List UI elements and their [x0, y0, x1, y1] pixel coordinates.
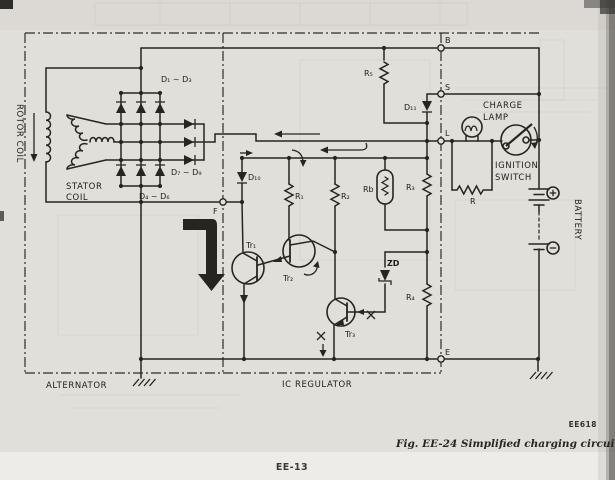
bleedthrough-ghosts [58, 3, 606, 408]
r2-label: R₂ [341, 192, 350, 201]
d7-d9-label: D₇ ~ D₉ [171, 168, 202, 177]
d10-label: D₁₀ [248, 173, 261, 182]
r3-label: R₃ [406, 183, 415, 192]
top-left-scan-mark [0, 0, 13, 9]
rotor-coil-label: ROTOR COIL [14, 104, 24, 163]
r5-label: R₅ [364, 69, 373, 78]
resistor-r3 [423, 174, 431, 196]
battery [529, 187, 559, 254]
charge-lamp [462, 117, 482, 137]
resistor-r5 [380, 62, 388, 84]
left-edge-scan-mark [0, 211, 4, 221]
d4-d6-label: D₄ ~ D₆ [139, 192, 170, 201]
big-current-arrow-icon [183, 219, 225, 291]
figure-caption: Fig. EE-24 Simplified charging circuit (… [395, 438, 615, 450]
tr3-emitter-arrow [336, 319, 344, 325]
junction-dots [119, 46, 541, 361]
diodes-d7-d9 [184, 119, 195, 165]
resistor-r4 [423, 284, 431, 306]
resistor-r2 [331, 184, 339, 206]
terminal-s [438, 91, 444, 97]
terminals [220, 45, 444, 362]
ground-battery [530, 372, 553, 379]
terminal-b-label: B [445, 36, 451, 45]
r4-label: R₄ [406, 293, 415, 302]
diode-d10 [237, 172, 247, 183]
tr2-label: Tr₂ [282, 274, 293, 283]
terminal-f-label: F [213, 207, 218, 216]
resistor-r1 [285, 184, 293, 206]
scan-artifacts [0, 0, 615, 480]
resistor-rb-element [382, 177, 388, 195]
stator-coil-label-2: COIL [66, 193, 88, 203]
current-arrow-curved-left [324, 143, 367, 150]
terminal-s-label: S [445, 83, 450, 92]
figure-code: EE618 [569, 420, 597, 429]
stator-coil [67, 115, 114, 169]
zener-diode-zd [379, 270, 391, 285]
zd-label: ZD [387, 259, 400, 268]
resistor-r [452, 186, 492, 194]
stator-coil-label-1: STATOR [66, 182, 102, 192]
terminal-l-label: L [445, 129, 450, 138]
terminal-b [438, 45, 444, 51]
transistor-tr1 [232, 252, 264, 284]
alternator-section-label: ALTERNATOR [46, 381, 107, 391]
blocked-current-x-base [357, 309, 375, 319]
ignition-switch-label-2: SWITCH [495, 173, 532, 183]
tr1-emitter-arrow [240, 295, 248, 304]
d1-d3-label: D₁ ~ D₃ [161, 75, 192, 84]
ground-alternator [133, 379, 156, 386]
terminal-e-label: E [445, 348, 450, 357]
ignition-switch-label-1: IGNITION [495, 161, 539, 171]
terminal-f [220, 199, 226, 205]
rb-label: Rb [363, 185, 374, 194]
flow-annotations [183, 131, 375, 358]
terminal-e [438, 356, 444, 362]
scanned-manual-page: ROTOR COIL STATOR COIL D₁ ~ D₃ D₇ ~ D₉ D… [0, 0, 615, 480]
charge-lamp-label-1: CHARGE [483, 101, 523, 111]
page-number: EE-13 [276, 462, 308, 473]
tr2-emitter-arrow [273, 256, 282, 262]
ic-regulator-section-label: IC REGULATOR [282, 380, 352, 390]
d11-label: D₁₁ [404, 103, 417, 112]
battery-label: BATTERY [572, 199, 582, 241]
tr1-label: Tr₁ [245, 241, 256, 250]
charging-circuit-diagram: ROTOR COIL STATOR COIL D₁ ~ D₃ D₇ ~ D₉ D… [0, 0, 615, 480]
diagram-labels: ROTOR COIL STATOR COIL D₁ ~ D₃ D₇ ~ D₉ D… [14, 36, 582, 391]
section-borders [25, 33, 539, 373]
r-label: R [470, 197, 476, 206]
transistor-tr2 [283, 235, 315, 267]
blocked-current-x-emitter [317, 332, 327, 357]
tr3-label: Tr₃ [344, 330, 355, 339]
r1-label: R₁ [295, 192, 304, 201]
charge-lamp-label-2: LAMP [483, 113, 509, 123]
wiring [46, 48, 539, 378]
terminal-l [438, 138, 444, 144]
rotor-coil [31, 112, 51, 162]
